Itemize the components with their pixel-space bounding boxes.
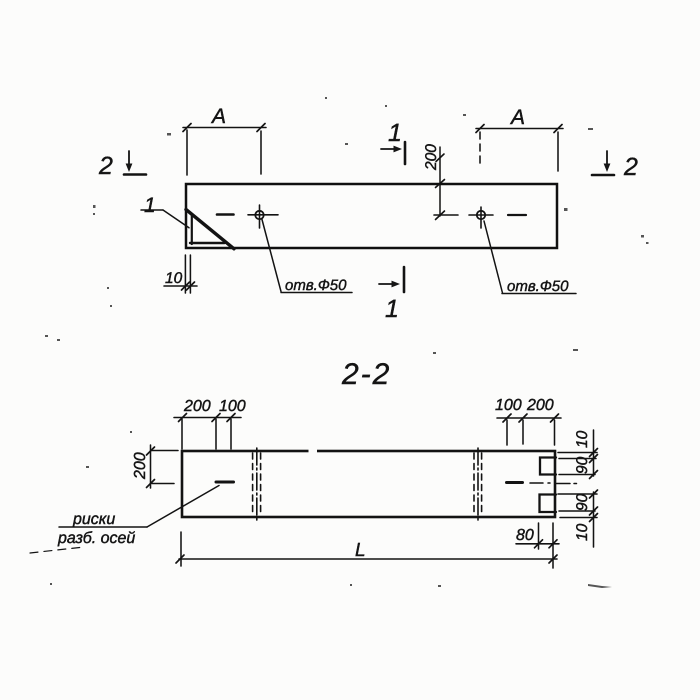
svg-text:200: 200 [183, 398, 211, 415]
svg-text:90: 90 [574, 493, 591, 511]
svg-text:10: 10 [574, 523, 591, 541]
svg-text:риски: риски [72, 511, 115, 528]
svg-text:200: 200 [132, 452, 149, 480]
svg-text:1: 1 [385, 295, 399, 323]
svg-text:1: 1 [388, 119, 402, 147]
svg-text:2: 2 [623, 153, 638, 181]
svg-text:2-2: 2-2 [341, 358, 391, 391]
svg-text:100: 100 [219, 398, 246, 415]
svg-text:100: 100 [495, 397, 522, 414]
svg-text:разб. осей: разб. осей [57, 530, 135, 547]
svg-text:отв.Ф50: отв.Ф50 [507, 278, 569, 295]
svg-text:200: 200 [526, 397, 554, 414]
svg-text:90: 90 [574, 456, 591, 474]
svg-text:2: 2 [98, 152, 113, 180]
svg-text:10: 10 [574, 430, 591, 448]
svg-text:отв.Ф50: отв.Ф50 [285, 277, 347, 294]
svg-text:10: 10 [165, 270, 183, 287]
svg-text:L: L [355, 540, 366, 561]
svg-text:200: 200 [423, 144, 440, 171]
svg-text:A: A [509, 106, 525, 129]
svg-text:A: A [210, 105, 226, 128]
svg-text:80: 80 [516, 527, 534, 544]
svg-text:1: 1 [144, 194, 156, 217]
